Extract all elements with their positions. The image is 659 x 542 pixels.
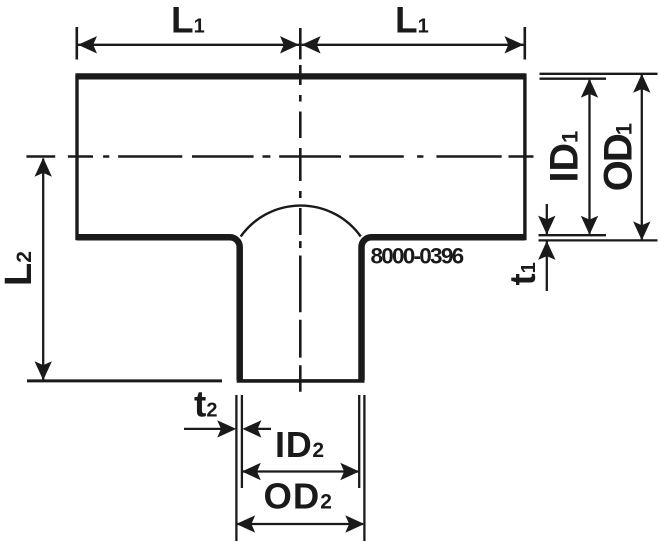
svg-text:8000-0396: 8000-0396 [371,244,464,269]
